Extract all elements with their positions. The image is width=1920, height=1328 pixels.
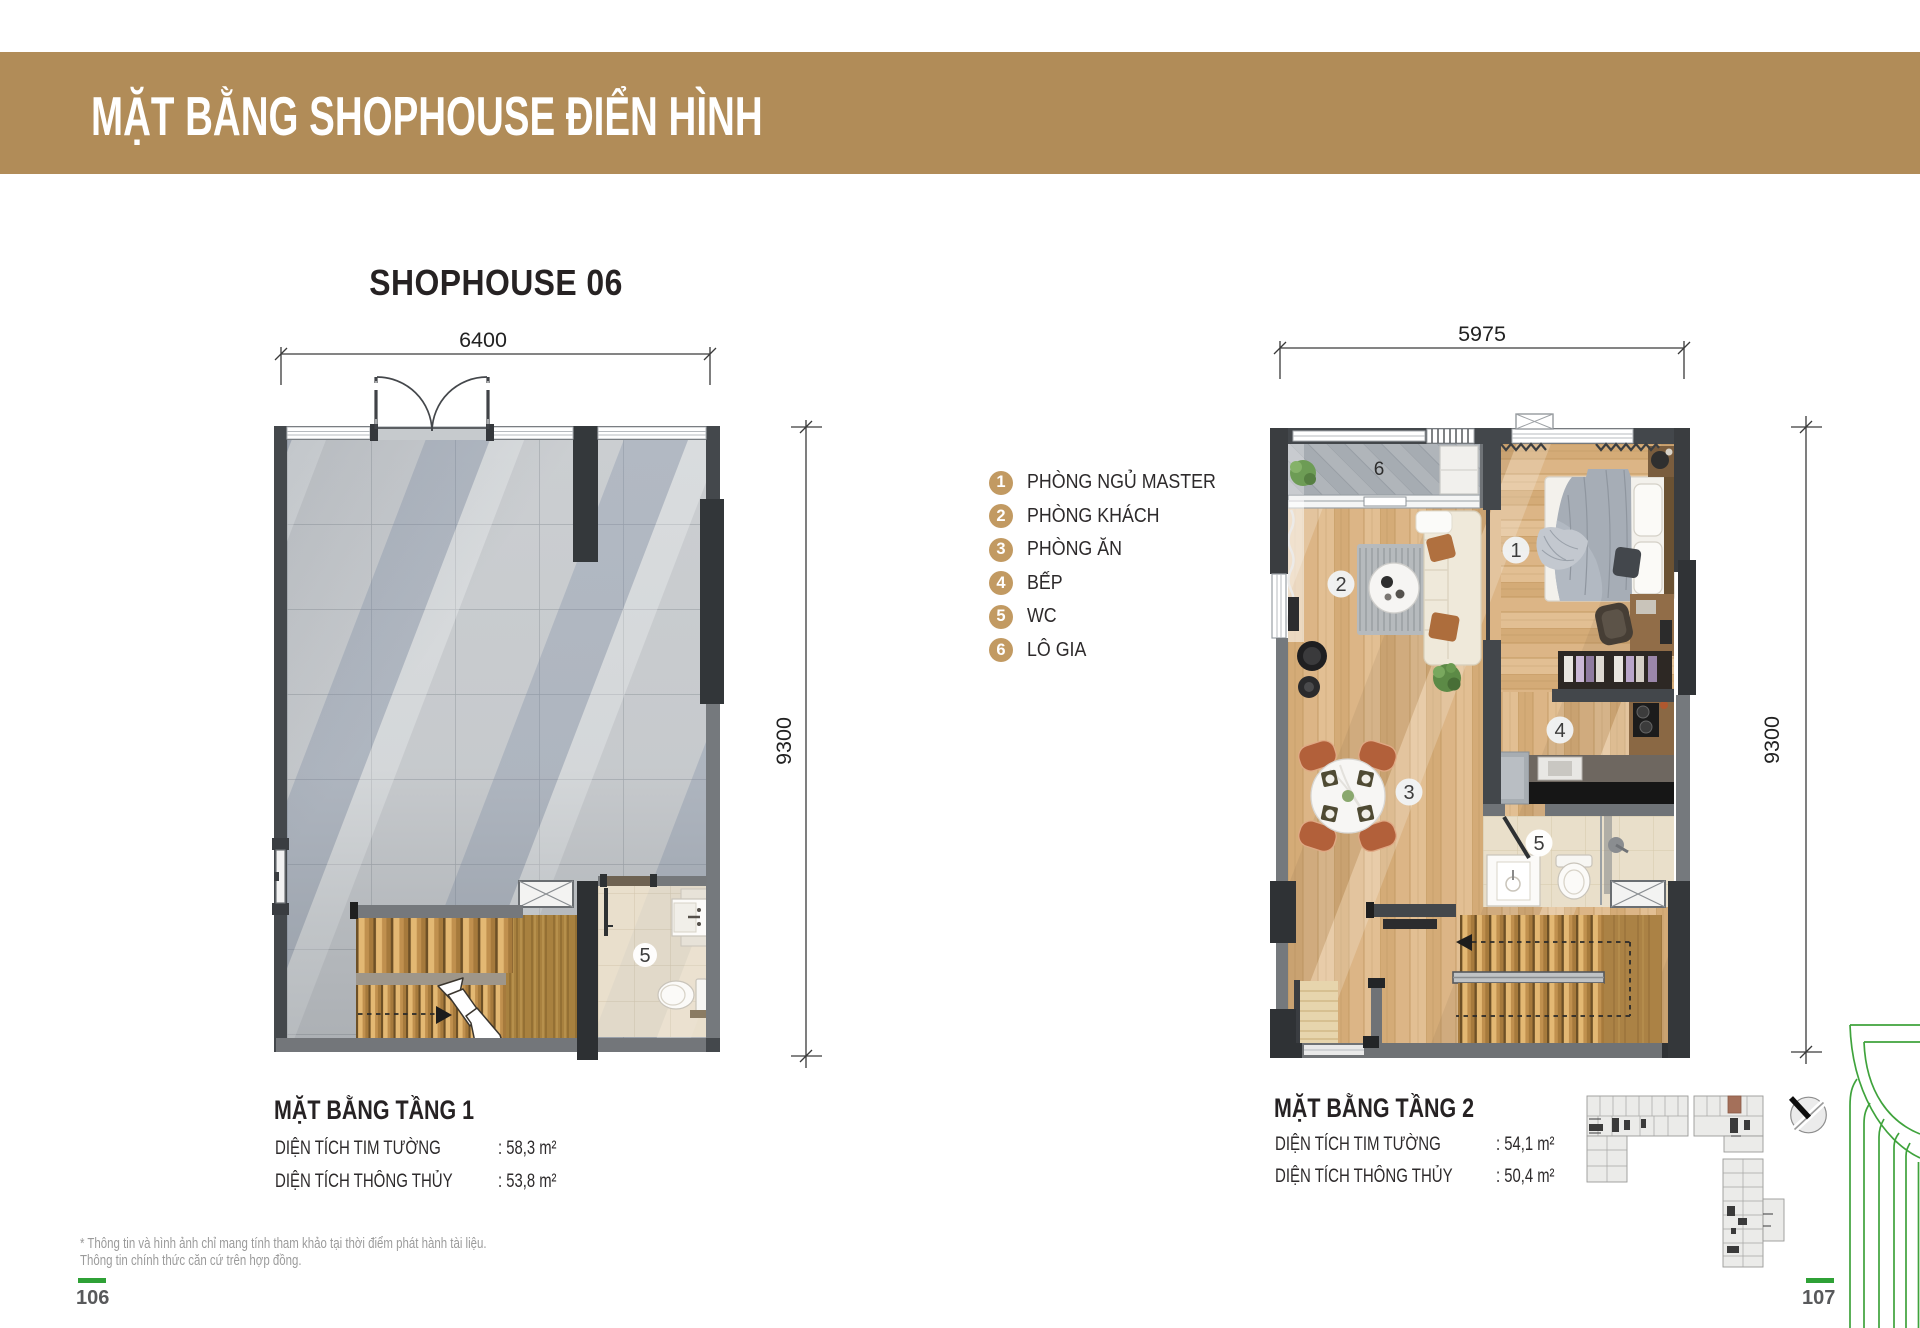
svg-text:5: 5: [1533, 833, 1544, 855]
svg-text:5975: 5975: [1458, 322, 1506, 346]
svg-text:5: 5: [639, 945, 650, 967]
svg-text:2: 2: [1335, 574, 1346, 596]
svg-text:9300: 9300: [1760, 716, 1784, 764]
svg-text:9300: 9300: [772, 717, 796, 765]
svg-text:4: 4: [1554, 720, 1565, 742]
svg-text:3: 3: [1403, 782, 1414, 804]
svg-text:6: 6: [1374, 459, 1385, 480]
svg-text:1: 1: [1510, 540, 1521, 562]
svg-text:6400: 6400: [459, 328, 507, 352]
